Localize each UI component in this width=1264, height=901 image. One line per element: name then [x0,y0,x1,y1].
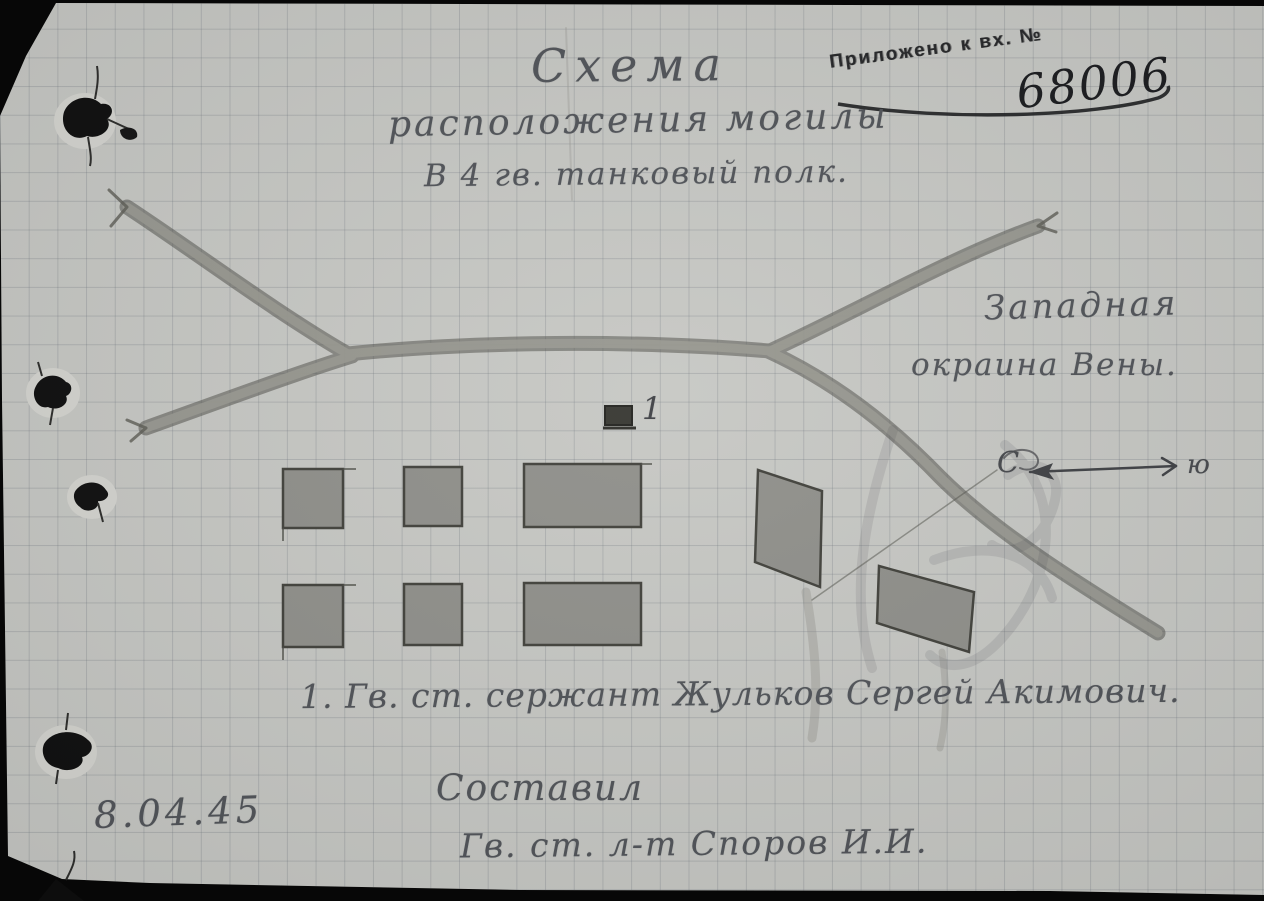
location-label-line-1: Западная [984,283,1179,328]
grave-marker-1 [603,406,636,428]
grave-legend-line: 1. Гв. ст. сержант Жульков Сергей Акимов… [300,671,1181,716]
smudge-streak [806,592,816,738]
grave-block-tilted [755,470,822,587]
author-signature: Гв. ст. л-т Споров И.И. [460,822,929,866]
grave-block-wide [524,583,641,645]
title-line-3: В 4 гв. танковый полк. [424,154,849,194]
grave-block-tilted [877,566,974,652]
paper-hole [54,66,137,166]
grave-block [404,467,462,526]
paper-hole [26,362,80,425]
composed-label: Составил [436,768,644,809]
title-line-1: Схема [531,37,730,93]
location-label-line-2: окраина Вены. [911,347,1178,383]
grave-block [404,584,462,645]
paper-hole [67,475,117,522]
grave-block [283,469,343,528]
scanned-document: Схема расположения могилы В 4 гв. танков… [0,0,1264,901]
compass-north-label: С [997,445,1019,479]
grave-block-wide [524,464,641,527]
document-date: 8.04.45 [93,788,264,837]
road-end-flare [109,190,127,226]
grave-block [283,585,343,647]
title-line-2: расположения могилы [388,96,889,146]
grave-number-label: 1 [642,391,662,427]
paper-tear-bottom [38,851,84,901]
road-network [109,190,1158,633]
paper-holes [26,66,137,901]
compass-south-label: ю [1187,450,1210,480]
paper-hole [35,713,97,784]
